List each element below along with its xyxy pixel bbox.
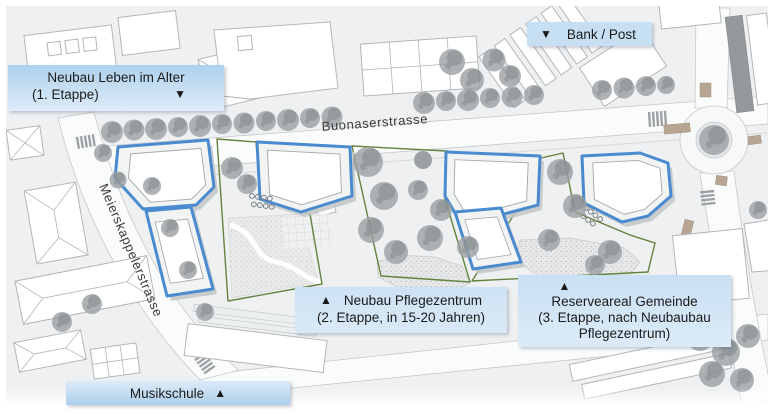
site-plan: Buonaserstrasse Meierskappelerstrasse Ne… <box>0 0 780 416</box>
callout-title: Neubau Leben im Alter <box>8 69 224 86</box>
callout-leben-im-alter: Neubau Leben im Alter (1. Etappe) ▼ <box>8 65 224 111</box>
up-arrow-icon: ▲ <box>559 279 571 293</box>
callout-reserveareal: ▲ Reserveareal Gemeinde (3. Etappe, nach… <box>518 275 731 347</box>
callout-subtitle: (3. Etappe, nach Neubaubau <box>518 310 731 326</box>
callout-title: Reserveareal Gemeinde <box>518 294 731 310</box>
callout-title: Bank / Post <box>567 26 636 43</box>
up-arrow-icon: ▲ <box>214 385 226 402</box>
callout-title: Neubau Pflegezentrum <box>344 292 482 309</box>
building-top-center <box>214 22 338 99</box>
callout-musikschule: Musikschule ▲ <box>66 381 290 405</box>
callout-subtitle: (1. Etappe) <box>32 86 99 103</box>
site-plan-map: Buonaserstrasse Meierskappelerstrasse <box>0 0 780 416</box>
callout-subtitle-2: Pflegezentrum) <box>518 326 731 342</box>
roundabout-tree <box>699 125 729 155</box>
callout-title: Musikschule <box>130 385 204 402</box>
down-arrow-icon: ▼ <box>540 26 552 43</box>
callout-subtitle: (2. Etappe, in 15-20 Jahren) <box>295 309 507 326</box>
up-arrow-icon: ▲ <box>320 292 332 309</box>
solid-tree-circle <box>414 151 432 169</box>
building-small-grid <box>90 343 140 379</box>
down-arrow-icon: ▼ <box>174 86 186 103</box>
callout-bank-post: ▼ Bank / Post <box>527 22 652 46</box>
